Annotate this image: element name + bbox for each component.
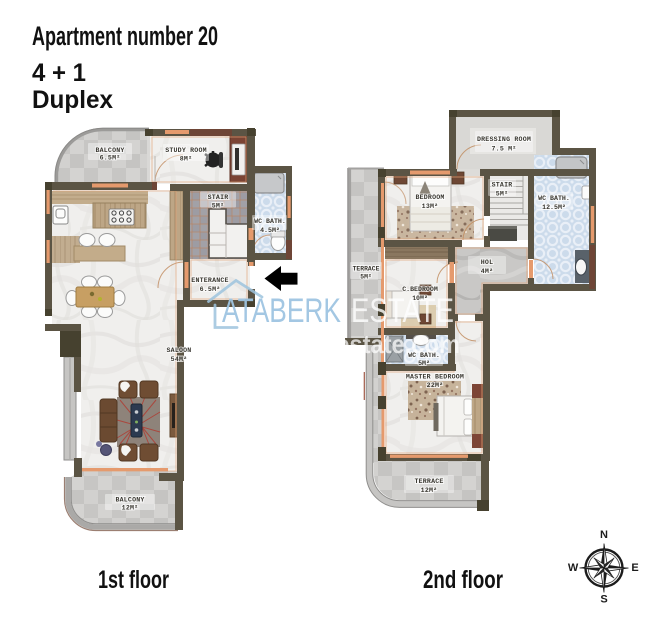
svg-text:ESTATE: ESTATE: [351, 292, 454, 330]
svg-text:DRESSING ROOM: DRESSING ROOM: [477, 136, 531, 143]
svg-text:BALCONY: BALCONY: [115, 497, 144, 504]
svg-text:Duplex: Duplex: [32, 86, 113, 114]
svg-text:5M²: 5M²: [212, 203, 224, 210]
svg-text:W: W: [568, 562, 579, 574]
svg-text:12.5M²: 12.5M²: [542, 204, 566, 211]
svg-text:ENTERANCE: ENTERANCE: [191, 277, 228, 284]
svg-text:E: E: [631, 562, 638, 574]
svg-text:WC BATH.: WC BATH.: [538, 195, 570, 202]
svg-text:1st floor: 1st floor: [98, 566, 169, 594]
svg-text:7.5 M²: 7.5 M²: [492, 146, 517, 153]
svg-text:MASTER BEDROOM: MASTER BEDROOM: [406, 374, 464, 381]
svg-text:5M²: 5M²: [418, 360, 430, 367]
svg-text:13M²: 13M²: [422, 203, 439, 210]
svg-text:6.5M²: 6.5M²: [100, 155, 121, 162]
svg-text:STUDY ROOM: STUDY ROOM: [165, 147, 207, 154]
svg-text:WC BATH.: WC BATH.: [254, 218, 286, 225]
svg-text:BEDROOM: BEDROOM: [415, 194, 444, 201]
svg-text:STAIR: STAIR: [492, 182, 513, 189]
svg-text:STAIR: STAIR: [208, 194, 229, 201]
svg-text:4 + 1: 4 + 1: [32, 59, 86, 87]
svg-text:5M²: 5M²: [360, 274, 372, 281]
svg-text:BALCONY: BALCONY: [95, 147, 124, 154]
svg-text:22M²: 22M²: [427, 382, 444, 389]
svg-text:ATABERK: ATABERK: [222, 292, 341, 330]
svg-text:4M²: 4M²: [481, 268, 493, 275]
svg-text:12M²: 12M²: [421, 487, 438, 494]
svg-text:HOL: HOL: [481, 259, 493, 266]
svg-text:54M²: 54M²: [171, 356, 188, 363]
svg-text:2nd floor: 2nd floor: [423, 566, 503, 594]
svg-text:6.5M²: 6.5M²: [200, 286, 221, 293]
svg-text:SALOON: SALOON: [167, 347, 192, 354]
svg-text:ataberkestate.com: ataberkestate.com: [252, 329, 460, 359]
svg-text:TERRACE: TERRACE: [353, 266, 380, 273]
svg-text:8M²: 8M²: [180, 156, 192, 163]
svg-text:TERRACE: TERRACE: [414, 478, 443, 485]
svg-text:Apartment number 20: Apartment number 20: [32, 21, 218, 51]
svg-text:S: S: [600, 594, 607, 606]
svg-text:N: N: [600, 529, 608, 541]
svg-text:5M²: 5M²: [496, 191, 508, 198]
svg-text:4.5M²: 4.5M²: [260, 227, 280, 234]
svg-text:12M²: 12M²: [122, 505, 139, 512]
